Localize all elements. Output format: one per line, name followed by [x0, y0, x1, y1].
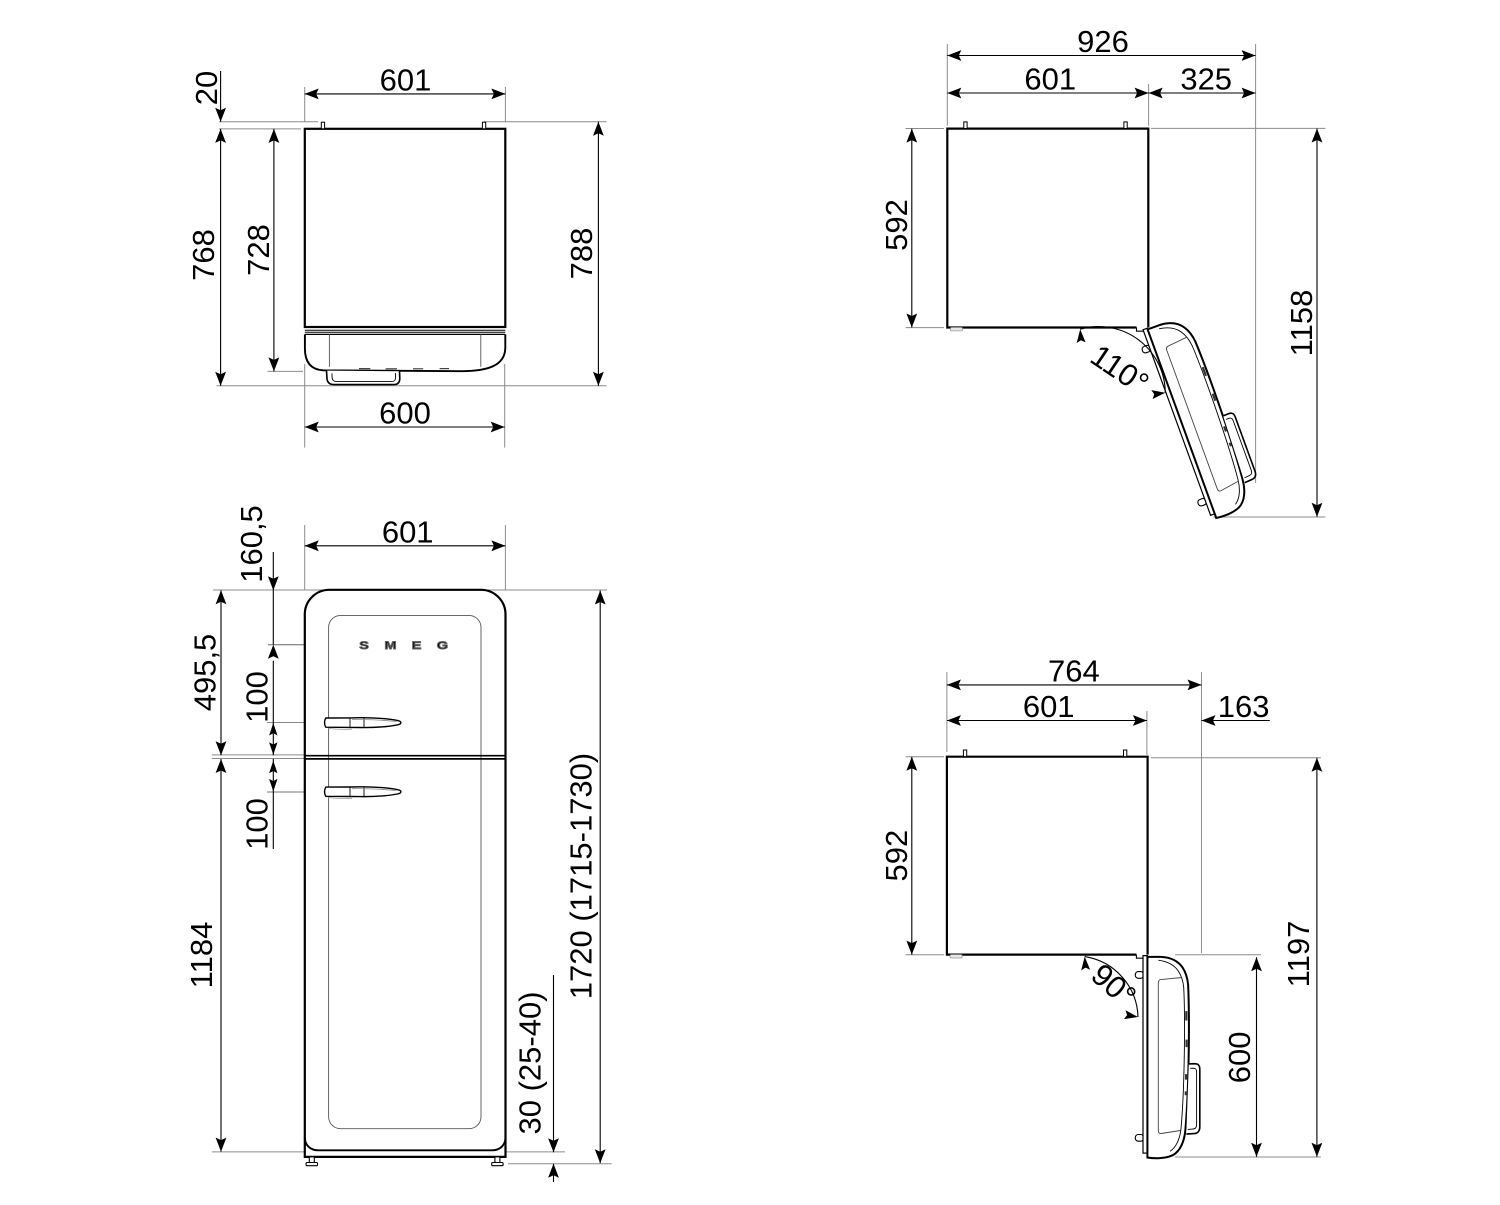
svg-text:926: 926 — [1077, 24, 1129, 59]
svg-text:600: 600 — [1222, 1032, 1257, 1084]
svg-text:592: 592 — [879, 830, 914, 882]
svg-text:1184: 1184 — [184, 922, 219, 989]
svg-text:601: 601 — [1024, 62, 1076, 97]
svg-text:20: 20 — [189, 71, 224, 105]
svg-text:163: 163 — [1218, 689, 1270, 724]
svg-text:1720 (1715-1730): 1720 (1715-1730) — [564, 753, 599, 999]
svg-text:788: 788 — [564, 228, 599, 280]
svg-text:728: 728 — [241, 224, 276, 276]
svg-text:495,5: 495,5 — [188, 634, 223, 712]
svg-text:764: 764 — [1048, 653, 1100, 688]
svg-text:160,5: 160,5 — [234, 505, 269, 583]
svg-text:100: 100 — [240, 671, 275, 723]
svg-text:M: M — [385, 638, 397, 651]
svg-text:30 (25-40): 30 (25-40) — [513, 991, 548, 1134]
svg-text:325: 325 — [1180, 62, 1232, 97]
svg-text:601: 601 — [382, 514, 434, 549]
svg-text:1197: 1197 — [1281, 921, 1316, 988]
svg-text:600: 600 — [379, 396, 431, 431]
svg-text:768: 768 — [186, 229, 221, 281]
svg-text:G: G — [437, 638, 448, 651]
svg-text:E: E — [412, 638, 422, 651]
svg-text:S: S — [359, 638, 369, 651]
svg-text:601: 601 — [380, 62, 432, 97]
svg-text:592: 592 — [879, 199, 914, 251]
svg-text:601: 601 — [1023, 689, 1075, 724]
svg-text:100: 100 — [240, 798, 275, 850]
svg-text:1158: 1158 — [1284, 290, 1319, 357]
